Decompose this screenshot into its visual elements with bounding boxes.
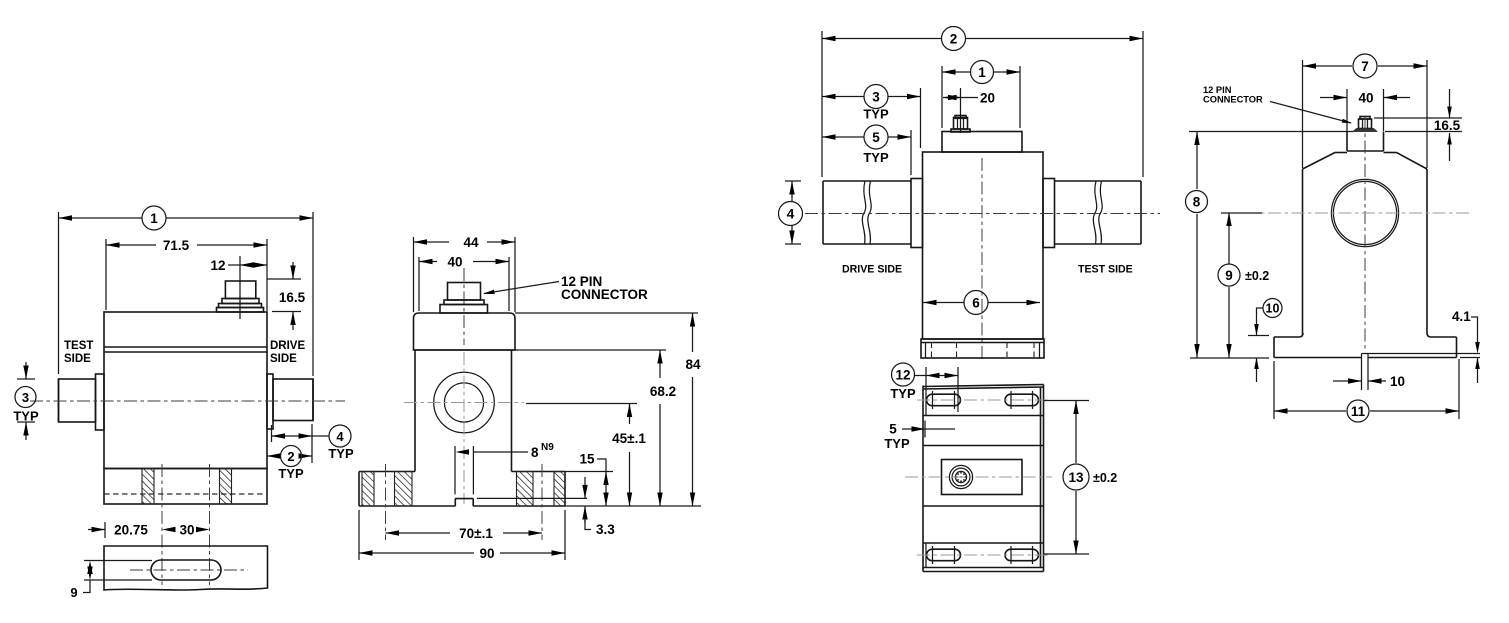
svg-text:68.2: 68.2 — [650, 384, 676, 399]
svg-text:12 PIN: 12 PIN — [1203, 85, 1232, 95]
svg-text:5: 5 — [872, 130, 880, 145]
svg-text:±0.2: ±0.2 — [1245, 269, 1269, 283]
svg-text:90: 90 — [479, 546, 494, 561]
svg-text:5: 5 — [889, 422, 897, 437]
svg-text:TYP: TYP — [863, 150, 889, 165]
svg-text:TYP: TYP — [278, 466, 304, 481]
svg-text:12: 12 — [210, 258, 225, 273]
svg-text:3: 3 — [22, 390, 29, 405]
svg-text:10: 10 — [1266, 302, 1280, 316]
svg-text:20: 20 — [980, 91, 995, 106]
svg-text:70±.1: 70±.1 — [459, 526, 493, 541]
svg-text:TYP: TYP — [863, 107, 889, 122]
svg-text:45±.1: 45±.1 — [612, 431, 646, 446]
svg-text:N9: N9 — [541, 442, 554, 453]
svg-text:TYP: TYP — [328, 446, 354, 461]
svg-text:TEST: TEST — [64, 340, 93, 352]
svg-text:TYP: TYP — [13, 409, 39, 424]
svg-text:30: 30 — [179, 523, 194, 538]
svg-text:8: 8 — [1193, 195, 1201, 210]
svg-text:DRIVE SIDE: DRIVE SIDE — [842, 264, 902, 276]
svg-text:20.75: 20.75 — [114, 523, 148, 538]
svg-text:8: 8 — [531, 445, 539, 460]
svg-text:16.5: 16.5 — [279, 290, 306, 305]
svg-text:9: 9 — [70, 585, 77, 600]
svg-text:3.3: 3.3 — [596, 522, 615, 537]
svg-text:2: 2 — [950, 32, 958, 47]
svg-text:±0.2: ±0.2 — [1093, 471, 1117, 485]
svg-text:40: 40 — [1358, 91, 1373, 106]
svg-text:9: 9 — [1225, 268, 1233, 283]
svg-text:3: 3 — [872, 90, 880, 105]
svg-text:2: 2 — [287, 449, 294, 464]
svg-text:CONNECTOR: CONNECTOR — [1203, 95, 1263, 105]
svg-text:40: 40 — [447, 255, 462, 270]
svg-text:84: 84 — [685, 357, 701, 372]
svg-text:TYP: TYP — [884, 436, 910, 451]
svg-text:DRIVE: DRIVE — [270, 340, 305, 352]
svg-text:15: 15 — [579, 452, 595, 467]
svg-text:11: 11 — [1351, 404, 1366, 419]
svg-text:12: 12 — [895, 368, 910, 383]
svg-text:13: 13 — [1068, 470, 1084, 485]
svg-text:SIDE: SIDE — [64, 353, 91, 365]
svg-text:TYP: TYP — [890, 386, 916, 401]
svg-text:16.5: 16.5 — [1434, 118, 1461, 133]
svg-text:4: 4 — [787, 207, 795, 222]
svg-text:10: 10 — [1390, 374, 1405, 389]
svg-text:SIDE: SIDE — [270, 353, 297, 365]
svg-text:44: 44 — [463, 235, 479, 250]
svg-text:4.1: 4.1 — [1452, 309, 1471, 324]
svg-text:TEST SIDE: TEST SIDE — [1078, 264, 1133, 276]
svg-text:1: 1 — [150, 211, 158, 226]
svg-text:71.5: 71.5 — [163, 238, 190, 253]
svg-text:CONNECTOR: CONNECTOR — [561, 287, 648, 302]
svg-text:6: 6 — [972, 296, 980, 311]
svg-text:4: 4 — [336, 429, 344, 444]
svg-text:7: 7 — [1361, 59, 1369, 74]
svg-text:1: 1 — [978, 65, 986, 80]
